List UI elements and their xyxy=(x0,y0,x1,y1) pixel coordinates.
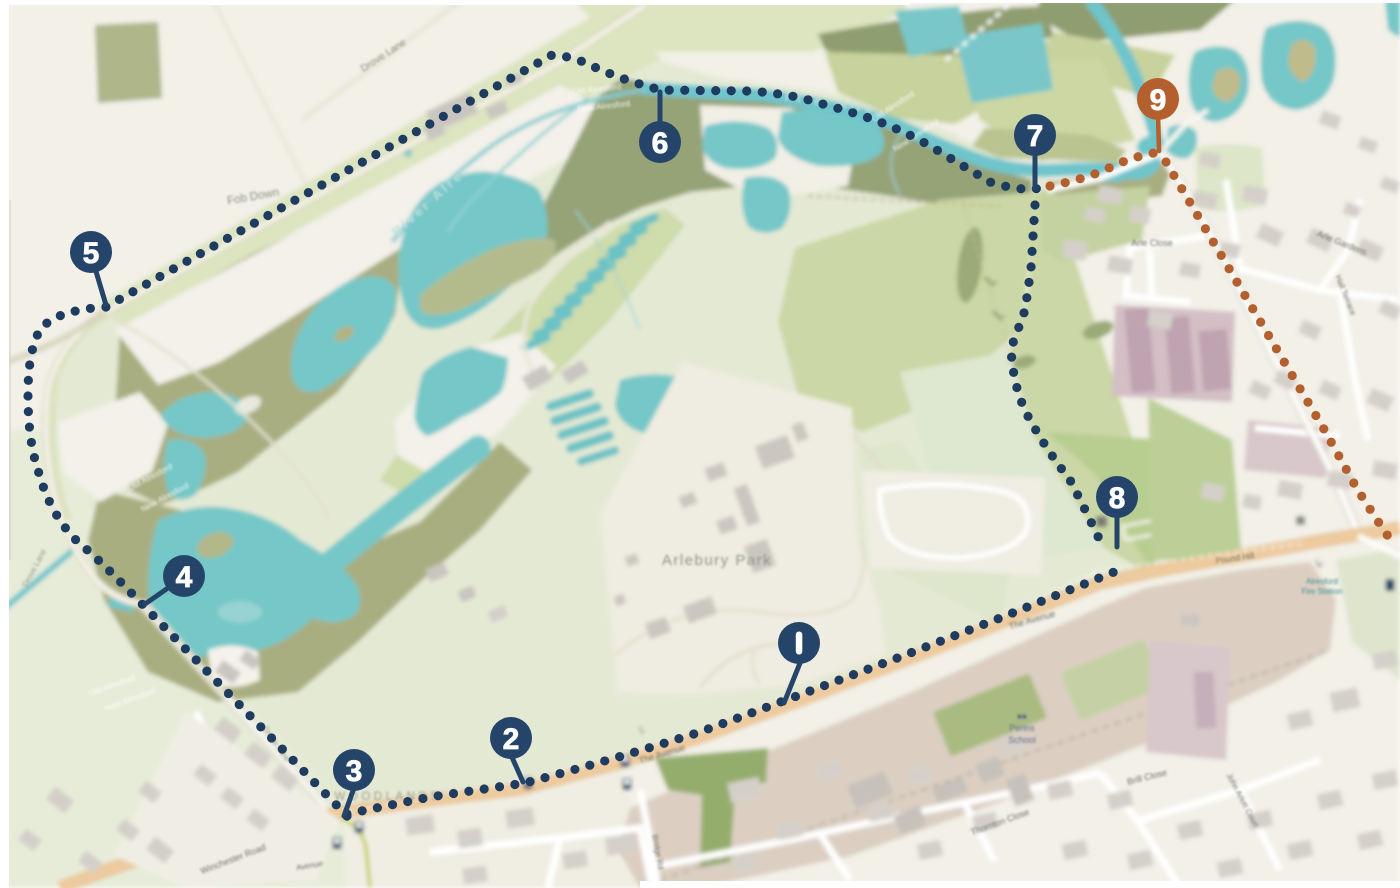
svg-text:8: 8 xyxy=(1109,482,1126,515)
svg-text:2: 2 xyxy=(503,723,520,756)
svg-text:9: 9 xyxy=(1150,84,1167,117)
svg-text:7: 7 xyxy=(1027,120,1044,153)
svg-text:6: 6 xyxy=(652,127,669,160)
svg-text:Arlebury Park: Arlebury Park xyxy=(662,552,772,569)
svg-text:3: 3 xyxy=(346,755,363,788)
svg-text:Fire Station: Fire Station xyxy=(1302,587,1343,596)
svg-text:5: 5 xyxy=(83,237,100,270)
svg-text:School: School xyxy=(1008,735,1036,745)
svg-text:Arle Close: Arle Close xyxy=(1131,238,1173,248)
svg-text:Alresford: Alresford xyxy=(1306,577,1338,586)
svg-text:4: 4 xyxy=(176,561,193,594)
svg-text:Perins: Perins xyxy=(1009,723,1035,733)
svg-text:■■: ■■ xyxy=(1017,712,1027,721)
